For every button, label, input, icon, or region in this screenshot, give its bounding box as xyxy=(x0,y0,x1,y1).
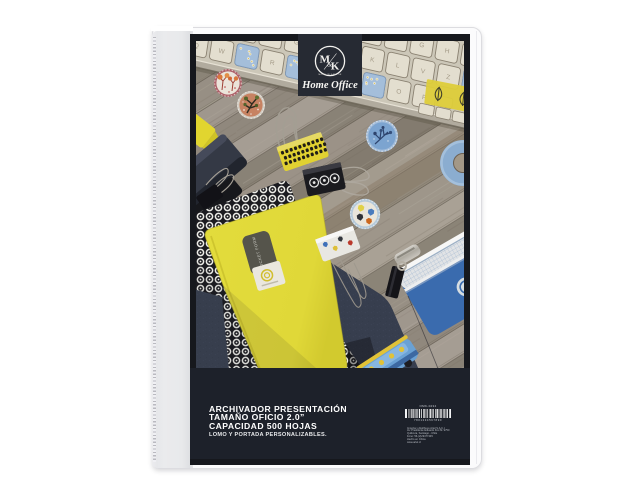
svg-text:K: K xyxy=(330,60,339,72)
svg-text:Home Office: Home Office xyxy=(301,80,358,91)
svg-text:MORE IN KANTOR: MORE IN KANTOR xyxy=(318,73,341,76)
